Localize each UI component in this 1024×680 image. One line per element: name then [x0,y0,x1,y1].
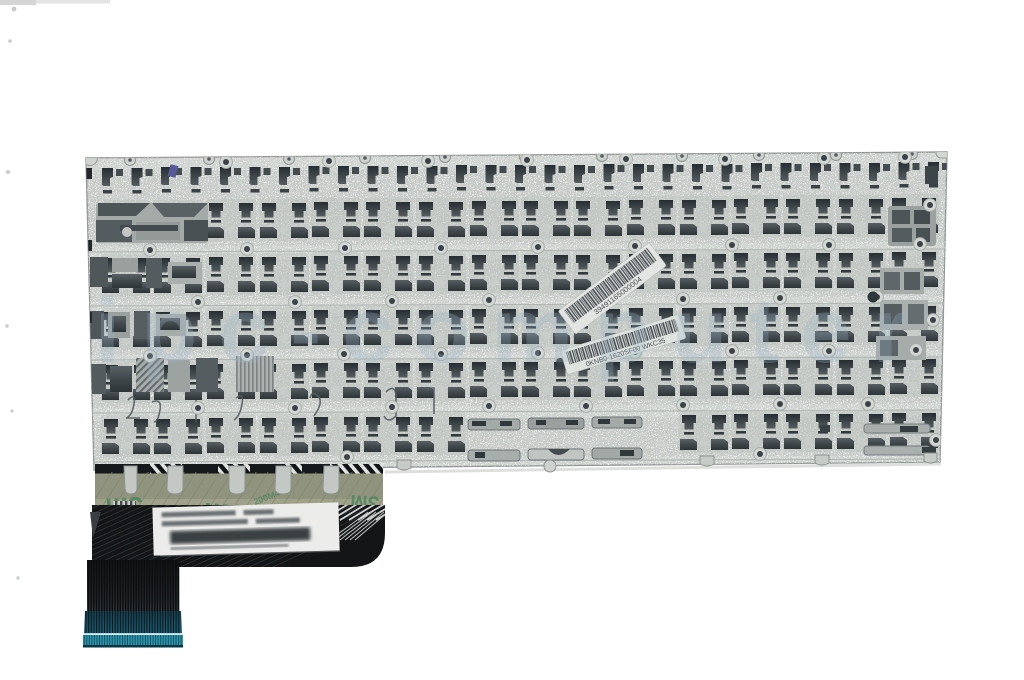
svg-text:ipc-computer: ipc-computer [95,280,930,382]
